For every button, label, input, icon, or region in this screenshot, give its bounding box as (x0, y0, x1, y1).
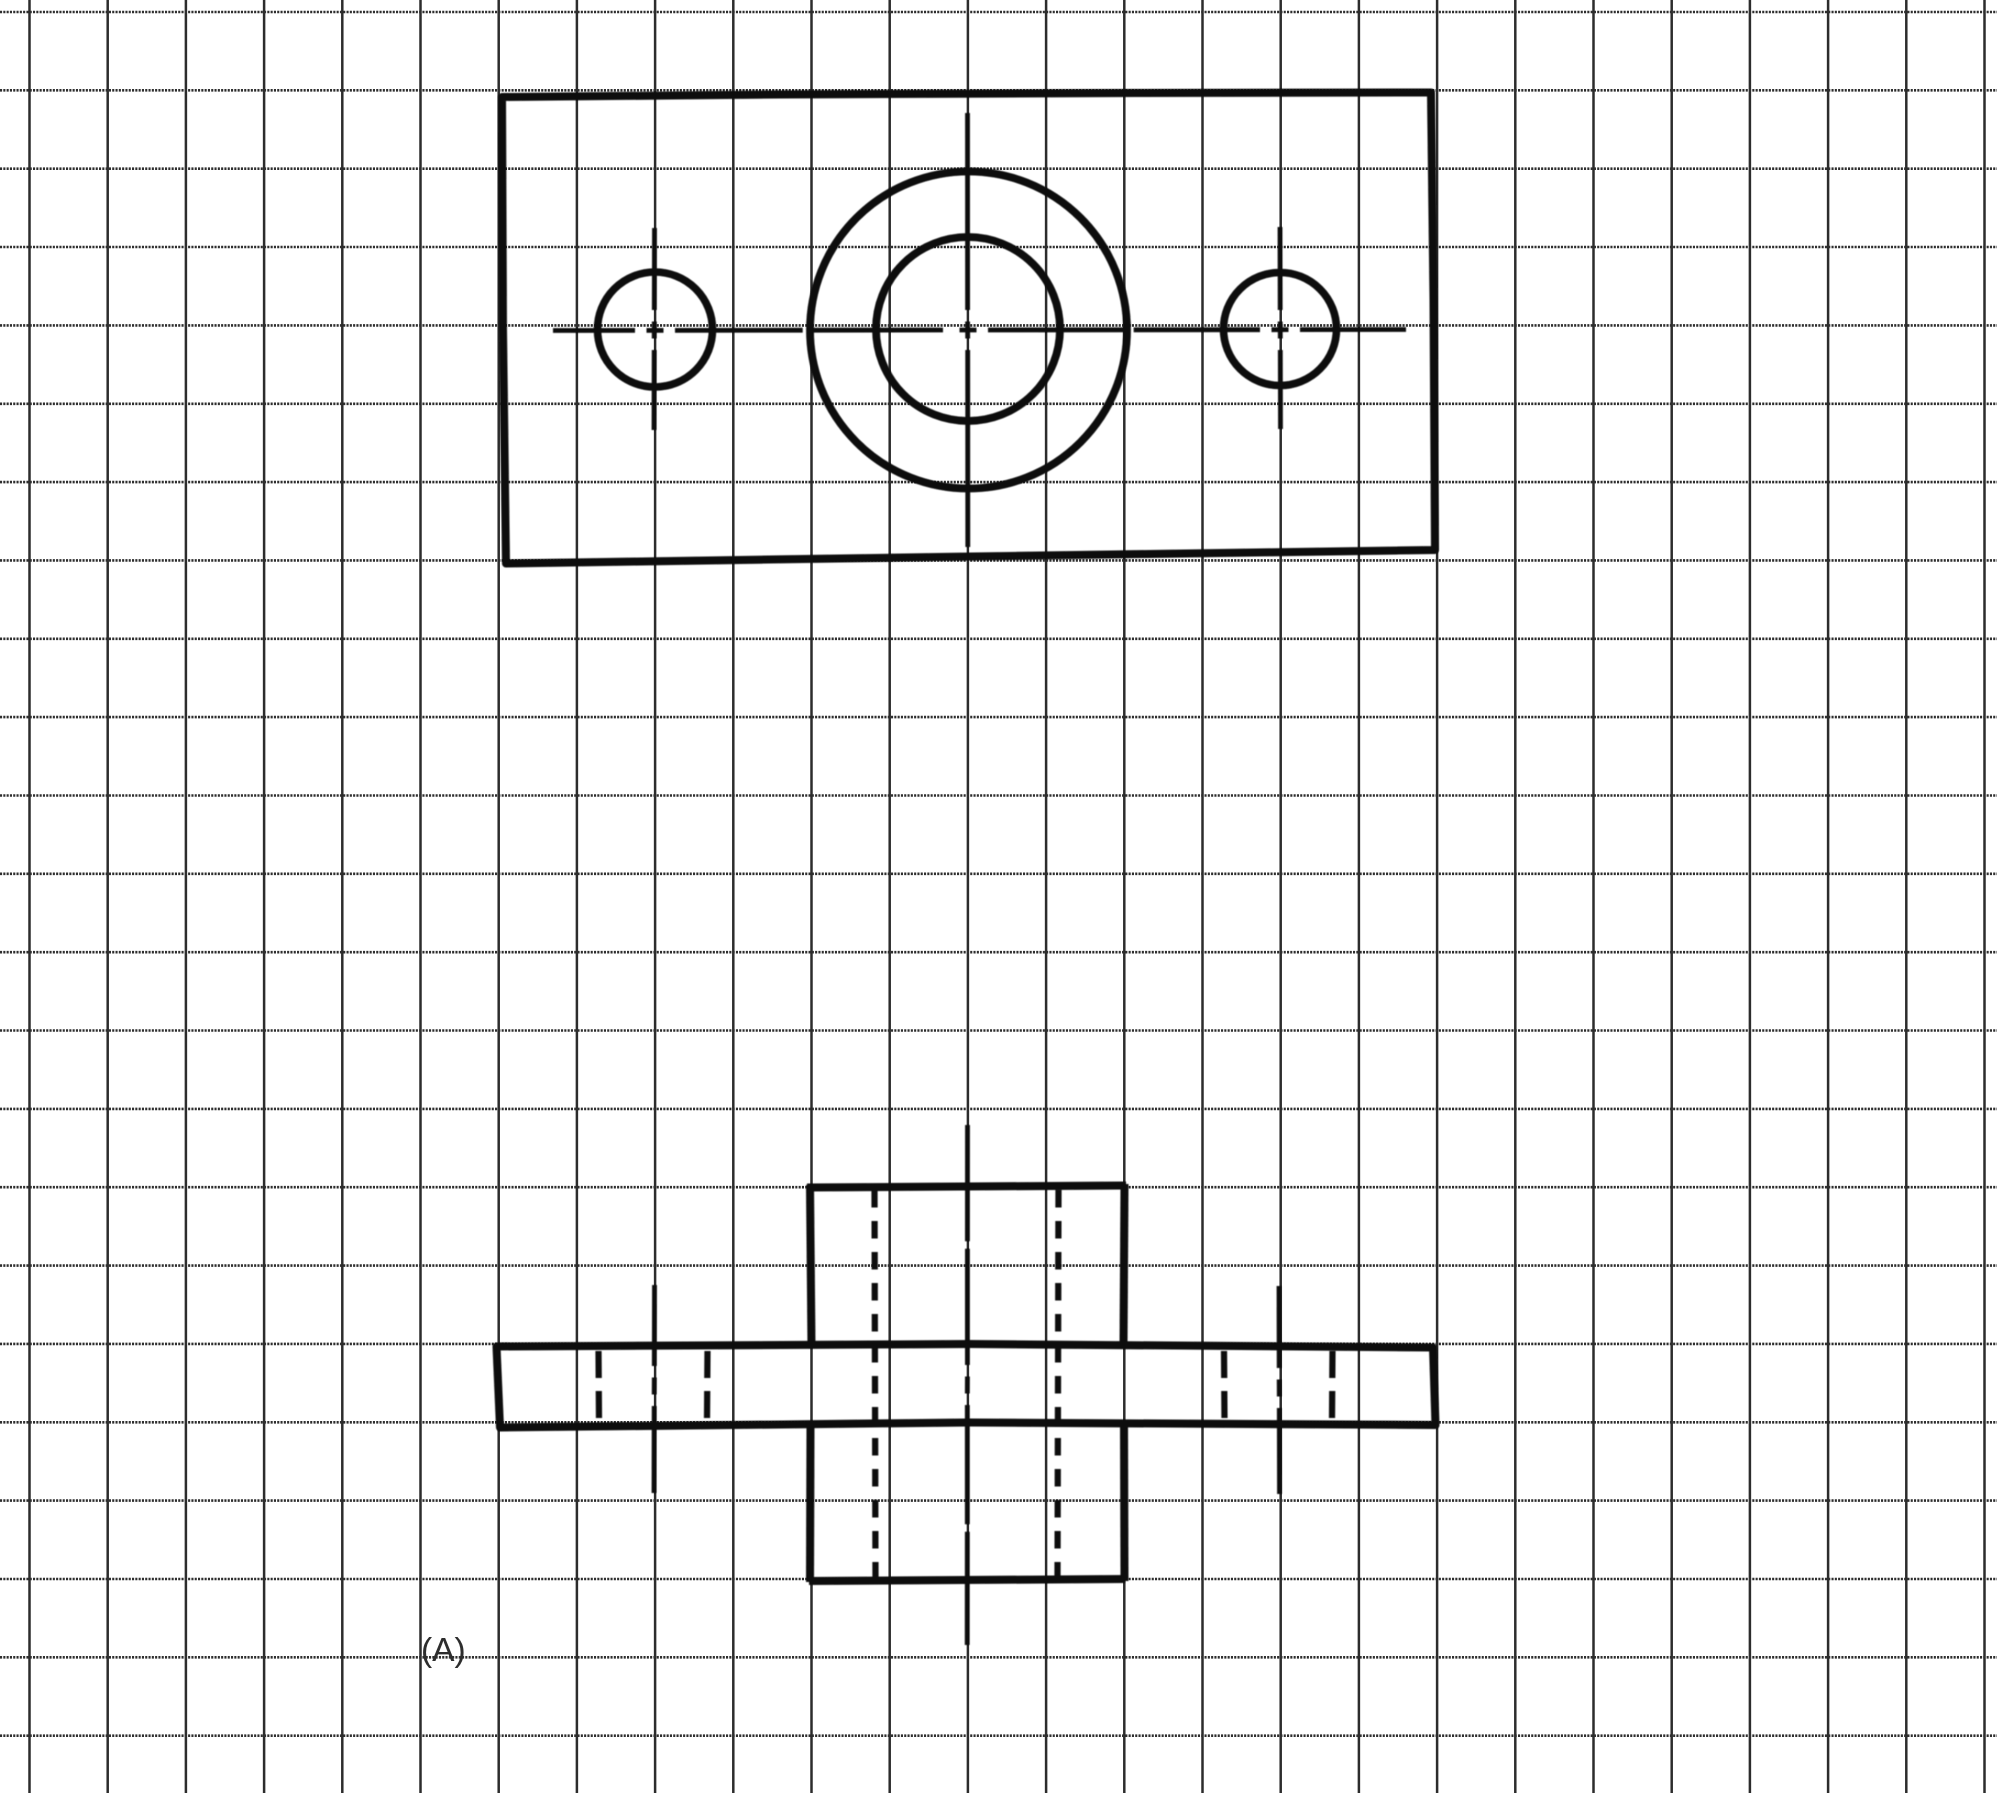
svg-text:(A): (A) (421, 1632, 466, 1669)
